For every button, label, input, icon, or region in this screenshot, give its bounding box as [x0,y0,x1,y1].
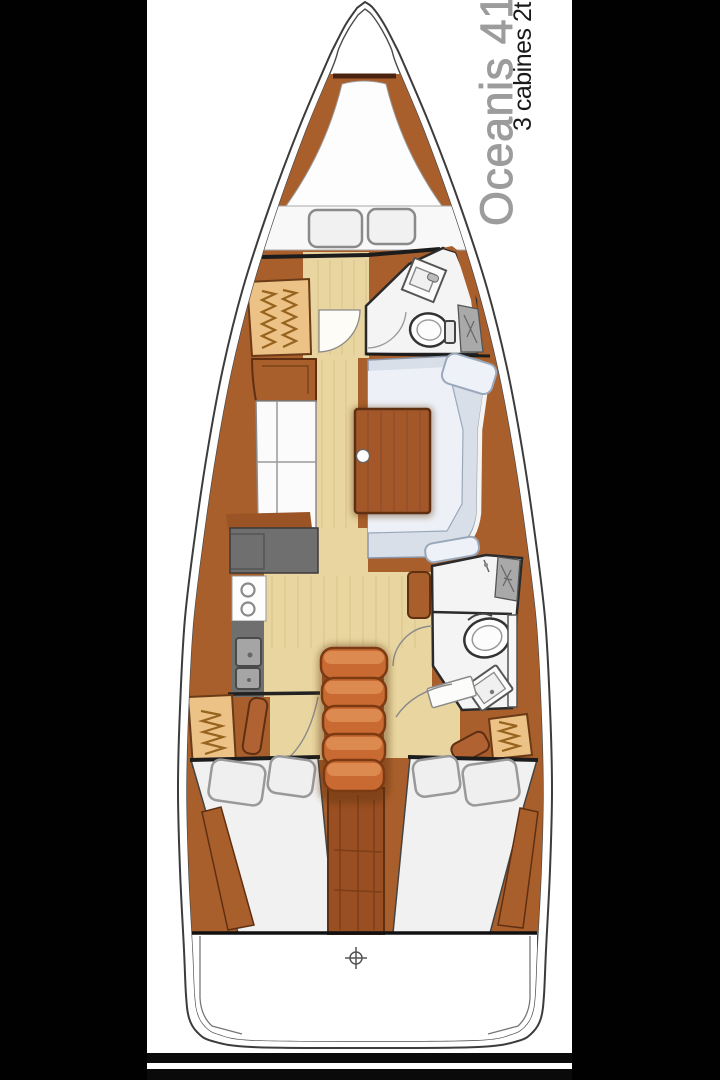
svg-text:3 cabines 2t: 3 cabines 2t [509,2,537,131]
